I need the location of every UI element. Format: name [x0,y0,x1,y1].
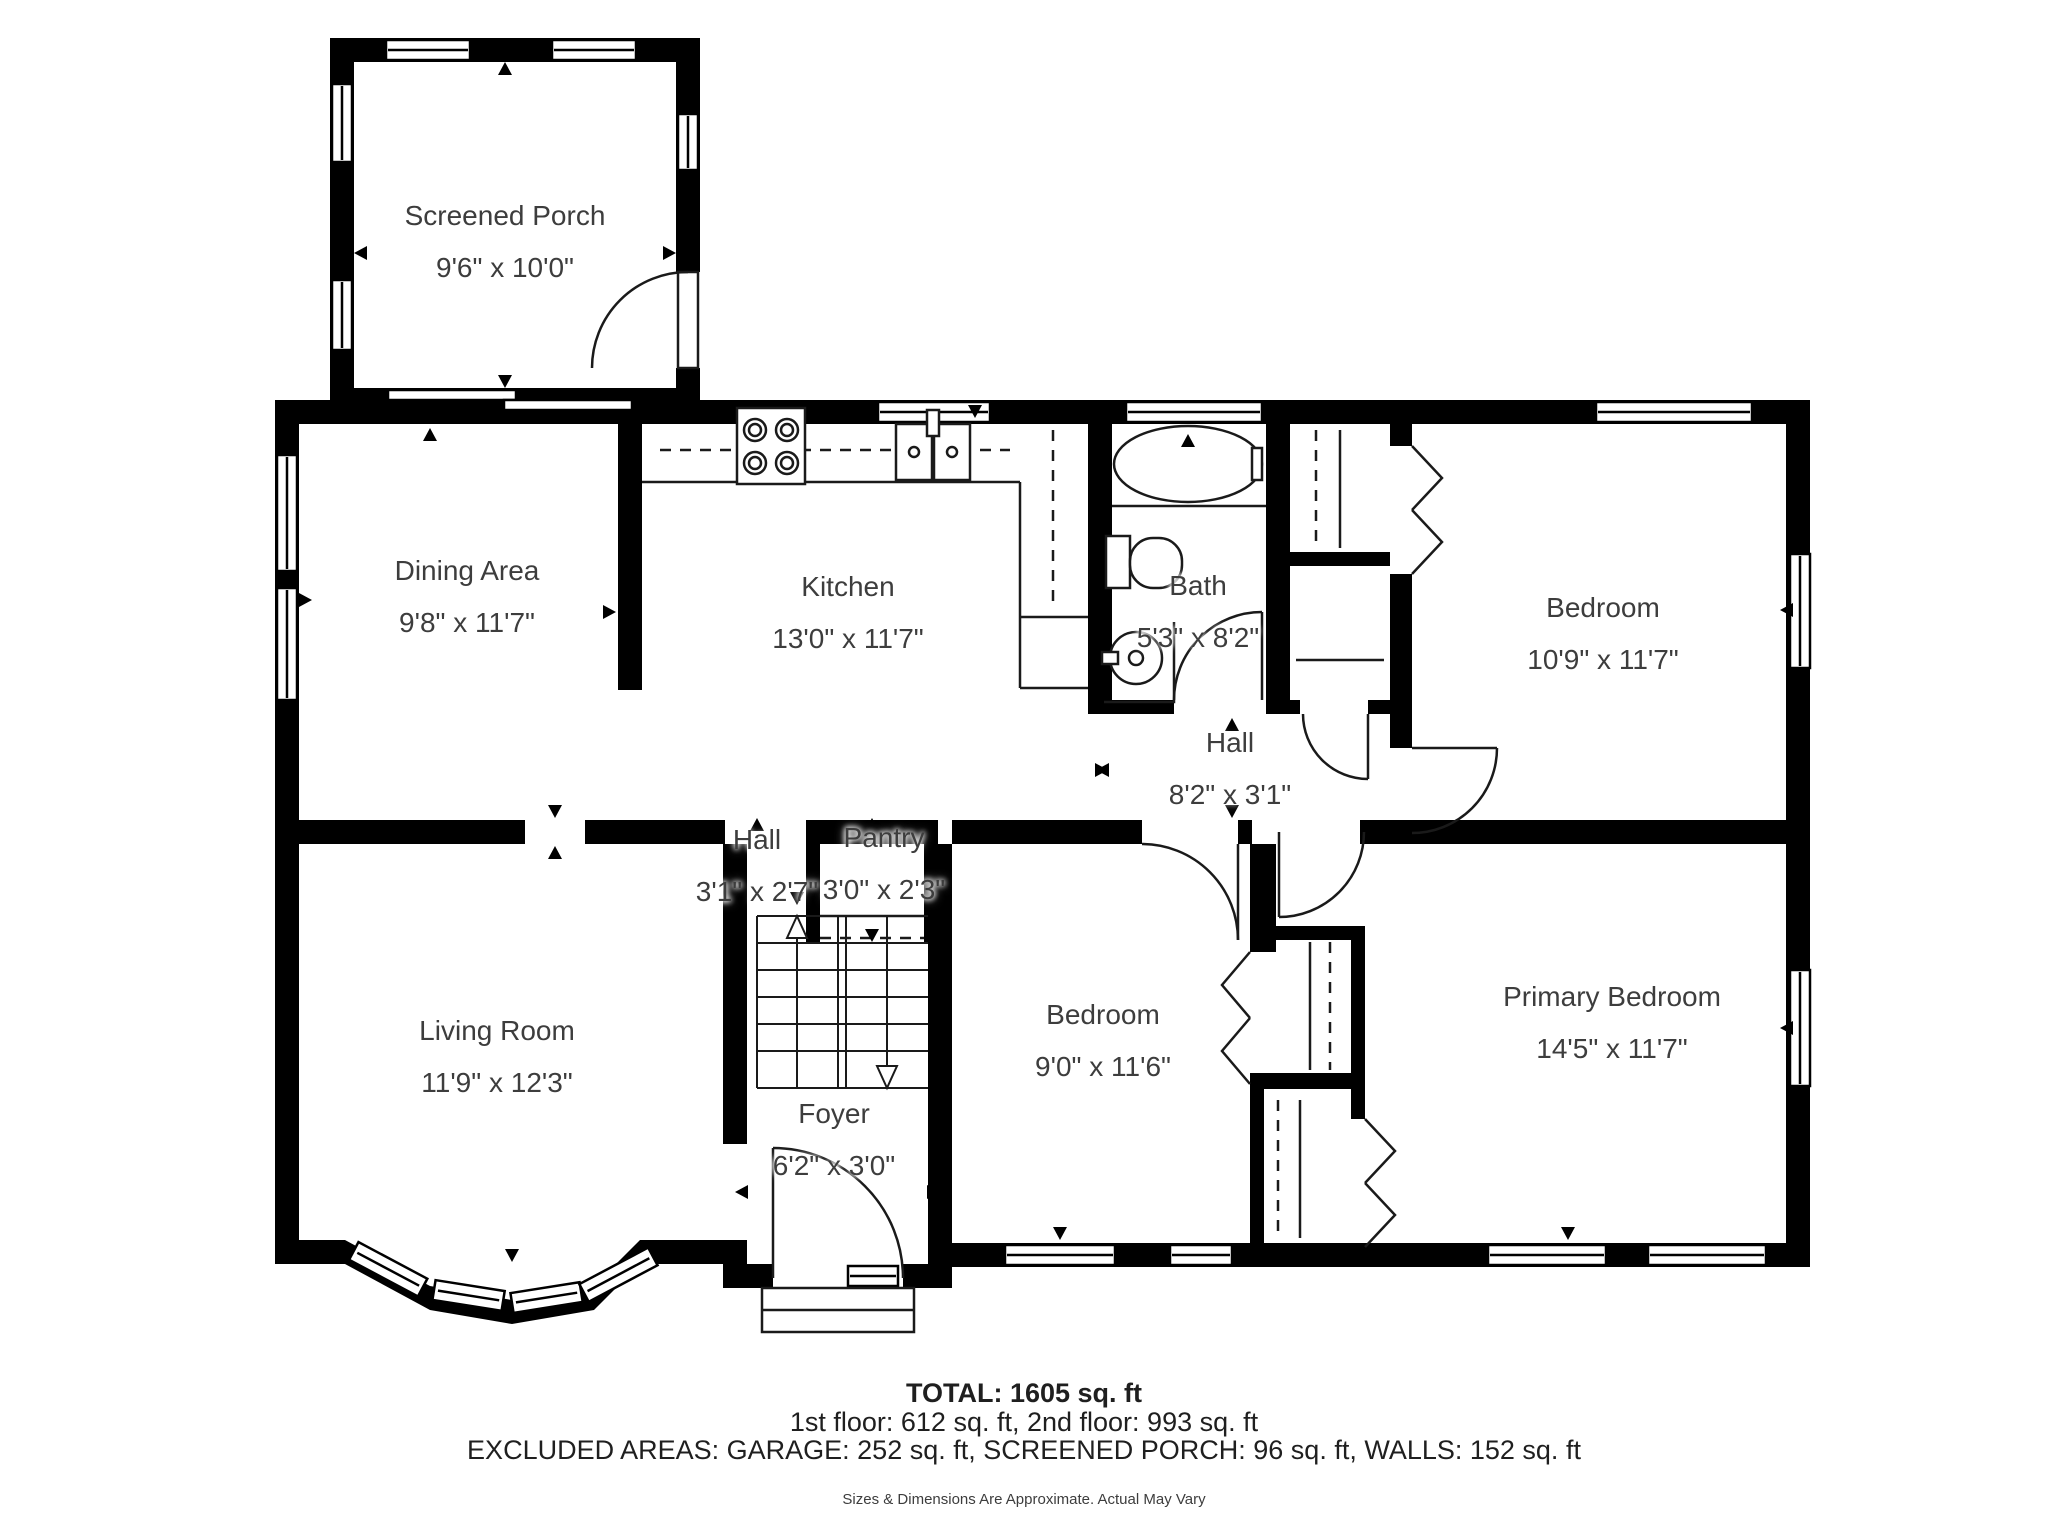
room-name: Kitchen [772,561,923,613]
room-name: Bedroom [1035,989,1171,1041]
dining-window [277,588,297,700]
room-dims: 14'5" x 11'7" [1503,1023,1721,1075]
porch-window [332,280,352,350]
room-label-primary-bedroom: Primary Bedroom 14'5" x 11'7" [1503,971,1721,1075]
closet-bifold [1412,446,1442,510]
room-label-bedroom-upper: Bedroom 10'9" x 11'7" [1527,582,1678,686]
entry-stoop [762,1288,914,1332]
room-dims: 9'0" x 11'6" [1035,1041,1171,1093]
room-label-screened-porch: Screened Porch 9'6" x 10'0" [405,190,606,294]
primary-door [1279,832,1364,917]
stairs [757,916,928,1088]
room-dims: 6'2" x 3'0" [773,1140,895,1192]
porch-window [386,40,470,60]
room-dims: 11'9" x 12'3" [419,1057,575,1109]
closet-bifold [1412,510,1442,574]
floorplan-canvas: Screened Porch 9'6" x 10'0" Dining Area … [0,0,2048,1536]
bay-window [349,1242,657,1313]
room-label-bedroom-lower: Bedroom 9'0" x 11'6" [1035,989,1171,1093]
disclaimer: Sizes & Dimensions Are Approximate. Actu… [0,1492,2048,1508]
room-dims: 13'0" x 11'7" [772,613,923,665]
room-name: Living Room [419,1005,575,1057]
closet-bifold [1365,1119,1395,1183]
closet-bifold [1222,952,1250,1018]
stairs-up-arrow [787,916,807,1088]
porch-window [678,114,698,170]
linen-door [1303,714,1368,779]
primary-bottom-window [1648,1245,1766,1265]
excluded-areas: EXCLUDED AREAS: GARAGE: 252 sq. ft, SCRE… [0,1436,2048,1464]
room-dims: 3'0" x 2'3" [823,864,945,916]
room-name: Bath [1137,560,1259,612]
floor-plan-drawing [0,0,2048,1536]
porch-window [552,40,636,60]
room-label-living-room: Living Room 11'9" x 12'3" [419,1005,575,1109]
closet-bifold [1222,1018,1250,1084]
room-name: Bedroom [1527,582,1678,634]
room-label-bath: Bath 5'3" x 8'2" [1137,560,1259,664]
room-name: Primary Bedroom [1503,971,1721,1023]
floor-areas: 1st floor: 612 sq. ft, 2nd floor: 993 sq… [0,1408,2048,1436]
room-name: Foyer [773,1088,895,1140]
room-label-foyer: Foyer 6'2" x 3'0" [773,1088,895,1192]
primary-bottom-window [1488,1245,1606,1265]
bath-window [1126,402,1262,422]
total-area: TOTAL: 1605 sq. ft [0,1378,2048,1408]
room-label-hall-upper: Hall 8'2" x 3'1" [1169,717,1291,821]
area-summary: TOTAL: 1605 sq. ft 1st floor: 612 sq. ft… [0,1378,2048,1508]
room-label-hall-stairs: Hall 3'1" x 2'7" [696,814,818,918]
stairs-down-arrow [877,916,897,1088]
room-name: Screened Porch [405,190,606,242]
room-dims: 9'6" x 10'0" [405,242,606,294]
room-dims: 5'3" x 8'2" [1137,612,1259,664]
porch-screen-door [592,272,698,368]
room-name: Dining Area [395,545,540,597]
bedroom-lower-door [1142,844,1238,940]
room-name: Hall [696,814,818,866]
room-label-kitchen: Kitchen 13'0" x 11'7" [772,561,923,665]
entry-sidelight [848,1266,898,1286]
stove [737,408,805,484]
closet-bifold [1365,1183,1395,1247]
room-name: Hall [1169,717,1291,769]
room-name: Pantry [823,812,945,864]
room-dims: 3'1" x 2'7" [696,866,818,918]
dining-window [277,455,297,571]
room-label-dining-area: Dining Area 9'8" x 11'7" [395,545,540,649]
bedroom-window [1596,402,1752,422]
room-label-pantry: Pantry 3'0" x 2'3" [823,812,945,916]
room-dims: 9'8" x 11'7" [395,597,540,649]
porch-window [332,84,352,162]
bedroom-lower-window [1170,1245,1232,1265]
bedroom-lower-window [1005,1245,1115,1265]
room-dims: 10'9" x 11'7" [1527,634,1678,686]
room-dims: 8'2" x 3'1" [1169,769,1291,821]
